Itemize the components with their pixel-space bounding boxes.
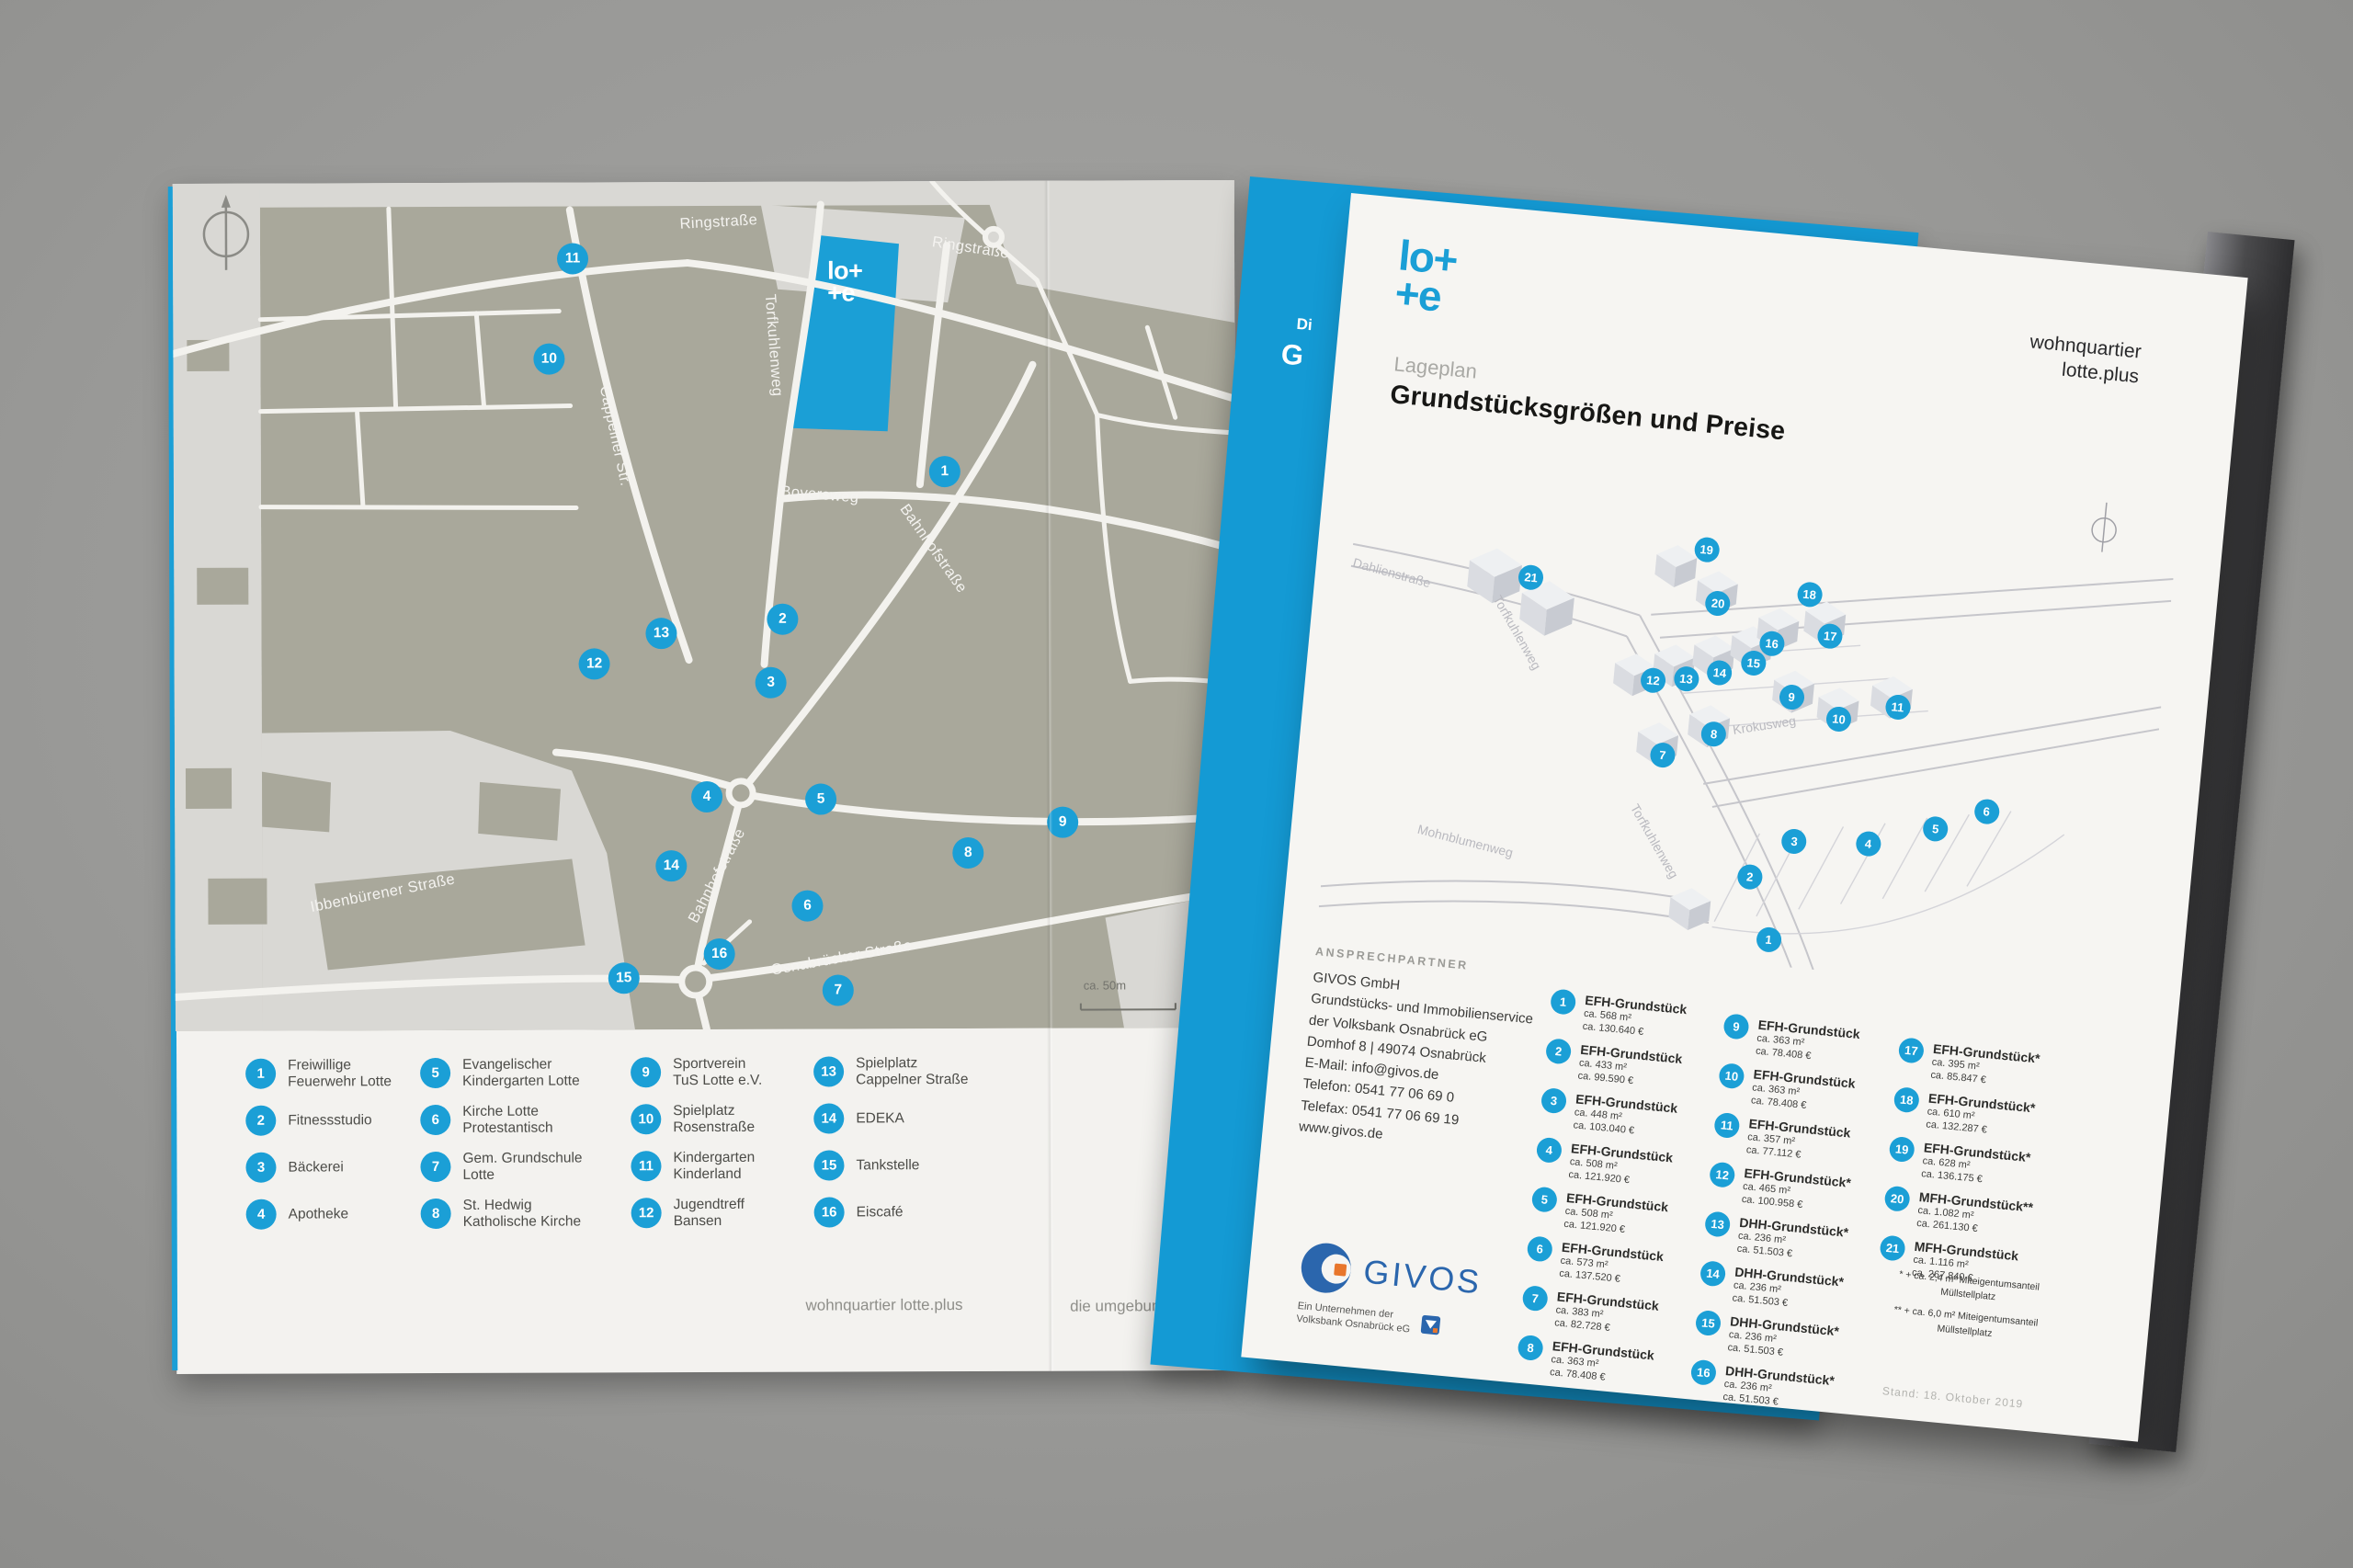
plot-number-badge: 21 — [1879, 1234, 1905, 1261]
map-marker: 2 — [767, 604, 798, 635]
price-item-text: EFH-Grundstück ca. 568 m² ca. 130.640 € — [1582, 992, 1688, 1043]
legend-item: 9 Sportverein TuS Lotte e.V. — [631, 1049, 813, 1096]
price-item-text: EFH-Grundstück ca. 448 m² ca. 103.040 € — [1573, 1090, 1678, 1142]
site-logo-line2: +e — [827, 282, 862, 304]
plot-number-badge: 13 — [1704, 1210, 1731, 1237]
map-marker: 13 — [645, 618, 676, 649]
plot-number-badge: 6 — [1527, 1235, 1553, 1262]
legend-label: Kirche Lotte Protestantisch — [462, 1104, 552, 1136]
plot-number-badge: 18 — [1893, 1086, 1920, 1113]
legend-label: Bäckerei — [288, 1159, 343, 1176]
map-marker: 8 — [952, 837, 983, 869]
page-eyebrow: Lageplan — [1392, 352, 1478, 383]
legend-label: Tankstelle — [856, 1157, 919, 1174]
price-item-text: DHH-Grundstück* ca. 236 m² ca. 51.503 € — [1736, 1214, 1849, 1267]
price-item-text: EFH-Grundstück* ca. 465 m² ca. 100.958 € — [1741, 1165, 1851, 1216]
legend-item: 14 EDEKA — [813, 1095, 1008, 1142]
plot-number-badge: 2 — [1545, 1038, 1572, 1064]
plot-number-badge: 17 — [1898, 1037, 1925, 1063]
map-marker: 14 — [655, 850, 687, 881]
volksbank-vr-icon — [1421, 1315, 1441, 1335]
legend-label: Gem. Grundschule Lotte — [462, 1151, 582, 1183]
plot-number-badge: 5 — [1531, 1186, 1558, 1212]
price-item-text: EFH-Grundstück ca. 508 m² ca. 121.920 € — [1568, 1140, 1674, 1191]
legend-label: Spielplatz Cappelner Straße — [856, 1055, 968, 1087]
legend-label: Fitnessstudio — [288, 1112, 371, 1129]
legend-item: 10 Spielplatz Rosenstraße — [631, 1096, 813, 1143]
plot-number-badge: 12 — [1709, 1162, 1735, 1188]
legend-label: Eiscafé — [857, 1204, 904, 1221]
givos-wordmark: GIVOS — [1362, 1253, 1483, 1302]
price-item-text: DHH-Grundstück* ca. 236 m² ca. 51.503 € — [1732, 1264, 1845, 1316]
lageplan-sheet: lo+ +e wohnquartier lotte.plus Lageplan … — [1241, 193, 2247, 1442]
covered-text-fragment: G — [1279, 338, 1304, 373]
plot-number-badge: 4 — [1536, 1137, 1563, 1164]
legend-number-badge: 5 — [420, 1058, 450, 1088]
legend-number-badge: 14 — [813, 1103, 844, 1133]
price-item-text: EFH-Grundstück ca. 383 m² ca. 82.728 € — [1554, 1288, 1660, 1339]
map-marker: 10 — [533, 344, 564, 375]
legend-item: 3 Bäckerei — [245, 1143, 420, 1191]
price-item-text: EFH-Grundstück ca. 363 m² ca. 78.408 € — [1755, 1017, 1860, 1068]
legend-label: Spielplatz Rosenstraße — [673, 1103, 755, 1135]
legend-label: Freiwillige Feuerwehr Lotte — [288, 1057, 392, 1089]
plot-number-badge: 14 — [1699, 1260, 1726, 1287]
legend-item: 15 Tankstelle — [813, 1142, 1008, 1189]
plot-number-badge: 10 — [1718, 1062, 1745, 1089]
legend-item: 6 Kirche Lotte Protestantisch — [420, 1096, 631, 1143]
plot-number-badge: 9 — [1722, 1013, 1749, 1040]
legend-item: 13 Spielplatz Cappelner Straße — [813, 1048, 1008, 1096]
legend-item: 8 St. Hedwig Katholische Kirche — [421, 1189, 631, 1237]
plot-number-badge: 20 — [1883, 1186, 1910, 1212]
legend-number-badge: 3 — [245, 1153, 276, 1183]
legend-number-badge: 6 — [420, 1105, 450, 1135]
price-column-3: 17 EFH-Grundstück* ca. 395 m² ca. 85.847… — [1877, 1037, 2084, 1301]
plot-number-badge: 19 — [1889, 1136, 1915, 1163]
price-column-2: 9 EFH-Grundstück ca. 363 m² ca. 78.408 €… — [1688, 1013, 1908, 1426]
plot-number-badge: 11 — [1713, 1112, 1740, 1139]
legend-item: 1 Freiwillige Feuerwehr Lotte — [245, 1050, 420, 1097]
price-item-text: EFH-Grundstück ca. 573 m² ca. 137.520 € — [1559, 1239, 1665, 1290]
map-marker: 5 — [805, 784, 836, 815]
legend-label: EDEKA — [856, 1110, 904, 1127]
legend-label: Apotheke — [289, 1206, 349, 1222]
legend-label: Kindergarten Kinderland — [673, 1150, 755, 1182]
legend-item: 5 Evangelischer Kindergarten Lotte — [420, 1049, 631, 1096]
legend-item: 4 Apotheke — [246, 1190, 421, 1238]
plot-number-badge: 1 — [1550, 988, 1576, 1015]
givos-logo-block: GIVOS Ein Unternehmen der Volksbank Osna… — [1296, 1241, 1560, 1350]
legend-label: Jugendtreff Bansen — [674, 1197, 745, 1229]
brochure-spread-umgebung: lo+ +e ca. 50m RingstraßeRingstraßeTorfk… — [173, 180, 1239, 1374]
price-item-text: EFH-Grundstück ca. 363 m² ca. 78.408 € — [1750, 1065, 1856, 1117]
siteplan: DahlienstraßeTorfkuhlenwegMohnblumenwegK… — [1317, 491, 2174, 1000]
legend-number-badge: 8 — [421, 1199, 451, 1229]
map-marker: 12 — [579, 648, 610, 679]
map-marker: 16 — [704, 938, 735, 970]
plot-number-badge: 16 — [1690, 1359, 1717, 1386]
legend-number-badge: 11 — [631, 1151, 661, 1181]
legend-number-badge: 7 — [420, 1152, 450, 1182]
legend-number-badge: 1 — [245, 1059, 276, 1089]
photo-backdrop: lo+ +e ca. 50m RingstraßeRingstraßeTorfk… — [0, 0, 2353, 1568]
covered-text-fragment: Di — [1296, 315, 1313, 335]
map-marker: 11 — [557, 243, 588, 274]
givos-subline: Ein Unternehmen der Volksbank Osnabrück … — [1296, 1300, 1412, 1336]
legend-item: 2 Fitnessstudio — [245, 1096, 420, 1144]
legend-item: 12 Jugendtreff Bansen — [631, 1189, 814, 1237]
price-item-text: EFH-Grundstück ca. 363 m² ca. 78.408 € — [1549, 1337, 1654, 1389]
legend-number-badge: 16 — [814, 1197, 845, 1227]
site-logo-lotte: lo+ +e — [827, 260, 862, 304]
map-marker: 1 — [929, 456, 961, 487]
legend-number-badge: 4 — [246, 1199, 277, 1230]
legend-number-badge: 12 — [631, 1198, 662, 1228]
map-marker: 4 — [691, 781, 722, 812]
map-marker: 6 — [791, 891, 823, 922]
lotte-plus-logo: lo+ +e — [1393, 236, 1459, 317]
legend-item: 16 Eiscafé — [814, 1188, 1009, 1236]
legend-number-badge: 2 — [245, 1106, 276, 1136]
price-item-text: EFH-Grundstück* ca. 628 m² ca. 136.175 € — [1921, 1139, 2031, 1190]
plot-number-badge: 15 — [1695, 1310, 1722, 1336]
price-item-text: EFH-Grundstück* ca. 395 m² ca. 85.847 € — [1930, 1040, 2040, 1092]
price-item-text: DHH-Grundstück* ca. 236 m² ca. 51.503 € — [1722, 1362, 1836, 1415]
map-legend: 1 Freiwillige Feuerwehr Lotte 2 Fitnesss… — [245, 1048, 1009, 1238]
price-item-text: DHH-Grundstück* ca. 236 m² ca. 51.503 € — [1727, 1312, 1840, 1365]
map-marker: 15 — [608, 962, 640, 994]
legend-label: Evangelischer Kindergarten Lotte — [462, 1057, 580, 1089]
price-item-text: EFH-Grundstück* ca. 610 m² ca. 132.287 € — [1926, 1090, 2036, 1142]
page-title: Grundstücksgrößen und Preise — [1389, 380, 1787, 447]
map-marker: 3 — [756, 667, 787, 699]
price-item-text: EFH-Grundstück ca. 508 m² ca. 121.920 € — [1563, 1189, 1669, 1241]
surroundings-map: lo+ +e ca. 50m RingstraßeRingstraßeTorfk… — [173, 180, 1237, 1031]
map-marker: 7 — [823, 974, 854, 1006]
legend-number-badge: 13 — [813, 1056, 844, 1086]
givos-logo-icon — [1299, 1241, 1353, 1295]
map-marker: 9 — [1047, 807, 1078, 838]
north-compass-icon — [2082, 499, 2127, 556]
legend-number-badge: 10 — [631, 1104, 661, 1134]
legend-label: St. Hedwig Katholische Kirche — [463, 1198, 581, 1230]
siteplan-graphic — [1317, 491, 2174, 1000]
legend-label: Sportverein TuS Lotte e.V. — [673, 1056, 762, 1088]
footer-brand: wohnquartier lotte.plus — [765, 1296, 1004, 1315]
legend-item: 11 Kindergarten Kinderland — [631, 1142, 813, 1190]
legend-number-badge: 9 — [631, 1057, 661, 1087]
price-item-text: EFH-Grundstück ca. 357 m² ca. 77.112 € — [1745, 1115, 1851, 1166]
legend-number-badge: 15 — [813, 1150, 844, 1180]
plot-number-badge: 3 — [1540, 1087, 1567, 1114]
brand-topright: wohnquartier lotte.plus — [1889, 316, 2143, 390]
map-scale-label: ca. 50m — [1084, 978, 1126, 992]
price-item-text: EFH-Grundstück ca. 433 m² ca. 99.590 € — [1577, 1041, 1683, 1093]
legend-item: 7 Gem. Grundschule Lotte — [420, 1142, 631, 1190]
